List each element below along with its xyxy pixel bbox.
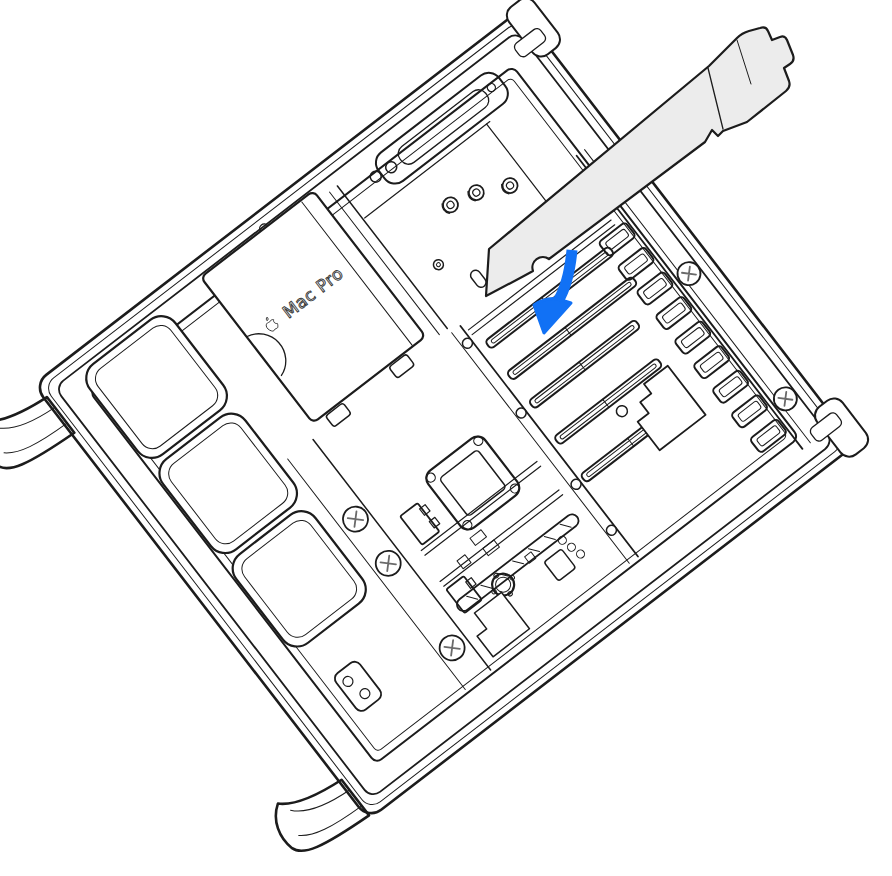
standoff-pin [439,194,461,216]
vent-slot [598,222,636,257]
pcie-slot [506,276,637,380]
phillips-screw [371,546,406,581]
standoff-pin [499,175,521,197]
vent-slot [655,296,693,331]
chassis-foot [264,764,369,866]
board-connector [446,573,486,613]
stepped-plate [613,366,706,458]
small-pin [431,258,445,272]
standoff-pin [465,182,487,204]
mac-pro-chassis: Mac Pro [0,0,873,874]
phillips-screw [673,258,705,290]
vent-slot [731,394,769,429]
frame-corner-cap-top [493,0,564,68]
illustration-canvas: Mac Pro [0,0,892,876]
vent-slot [636,271,674,306]
vent-slot [617,246,655,281]
vent-slot [674,320,712,355]
insertion-arrow-icon [534,250,572,333]
mac-pro-illustration: Mac Pro [0,0,892,876]
guide-slot [469,268,489,289]
vent-slot [712,369,750,404]
chassis-foot [0,381,74,483]
phillips-screw [769,383,801,415]
vent-slot [749,418,787,453]
cable-bracket [332,659,384,714]
vent-slot [693,345,731,380]
frame-corner-cap-right [801,394,872,468]
